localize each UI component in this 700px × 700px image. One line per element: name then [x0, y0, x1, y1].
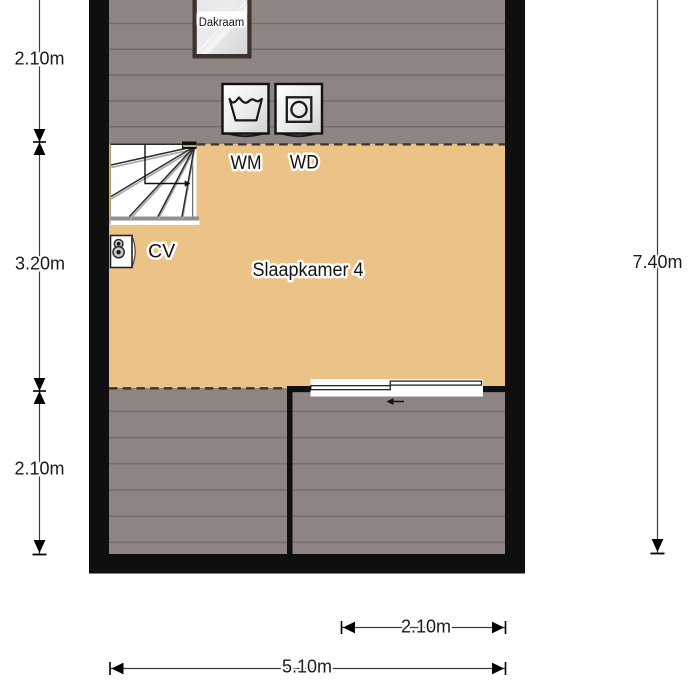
svg-text:5.10m: 5.10m	[282, 657, 332, 677]
svg-text:WD: WD	[290, 153, 319, 174]
svg-text:2.10m: 2.10m	[14, 459, 64, 479]
svg-text:7.40m: 7.40m	[632, 252, 682, 272]
svg-text:2.10m: 2.10m	[14, 49, 64, 69]
svg-text:2.10m: 2.10m	[401, 617, 451, 637]
svg-text:Slaapkamer 4: Slaapkamer 4	[253, 260, 364, 281]
svg-text:WM: WM	[231, 153, 262, 174]
svg-text:CV: CV	[148, 242, 175, 263]
svg-text:Dakraam: Dakraam	[199, 17, 245, 29]
svg-text:3.20m: 3.20m	[15, 254, 65, 274]
